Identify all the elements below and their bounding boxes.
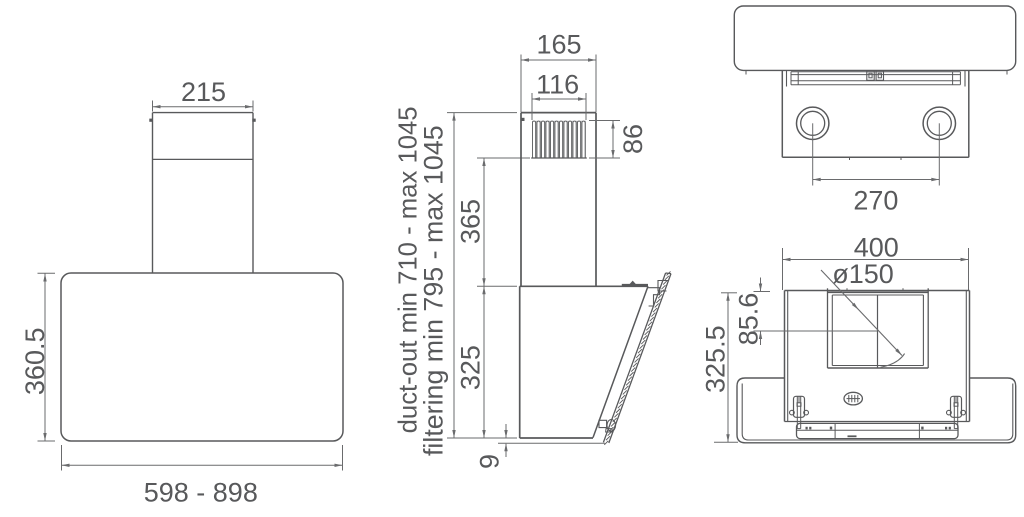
svg-text:325: 325 [456, 345, 486, 390]
svg-text:165: 165 [536, 30, 581, 60]
svg-text:360.5: 360.5 [20, 328, 50, 396]
svg-text:ø150: ø150 [832, 259, 894, 289]
svg-text:215: 215 [181, 77, 226, 107]
svg-text:365: 365 [456, 199, 486, 244]
svg-text:325.5: 325.5 [700, 325, 730, 393]
svg-text:116: 116 [536, 69, 579, 99]
svg-text:400: 400 [854, 233, 899, 263]
svg-text:270: 270 [853, 186, 898, 216]
svg-text:filtering min 795 - max 1045: filtering min 795 - max 1045 [418, 125, 448, 456]
svg-text:86: 86 [618, 124, 648, 154]
svg-text:9: 9 [475, 454, 505, 469]
svg-text:598 - 898: 598 - 898 [144, 478, 258, 508]
svg-text:85.6: 85.6 [734, 293, 764, 346]
